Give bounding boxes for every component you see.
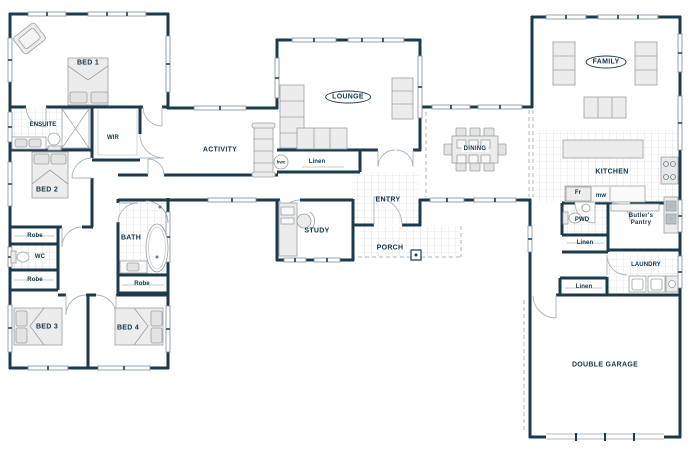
- cooktop: [661, 157, 678, 184]
- room-label-double-garage: DOUBLE GARAGE: [572, 362, 638, 369]
- pantry-counter: [611, 204, 659, 211]
- room-label-bed1: BED 1: [77, 60, 99, 67]
- room-label-butlers-pantry: Butler's Pantry: [622, 213, 660, 227]
- butler-sink: [664, 197, 678, 233]
- room-label-linen-upper: Linen: [577, 240, 594, 246]
- room-label-pwd: PWD: [575, 217, 589, 223]
- laundry-appliances: [629, 276, 678, 292]
- room-label-kitchen: KITCHEN: [595, 169, 628, 176]
- room-label-dining: DINING: [462, 146, 489, 152]
- family-sofa-bottom: [584, 97, 626, 118]
- bath-vanity: [120, 261, 147, 273]
- lounge-armchair: [392, 78, 413, 119]
- room-label-robe-bath: Robe: [134, 281, 149, 287]
- kitchen-island: [563, 140, 643, 158]
- room-label-bed4: BED 4: [117, 325, 139, 332]
- bath-tub: [146, 224, 168, 272]
- room-label-wir: WIR: [107, 135, 119, 141]
- room-label-robe-hall: Robe: [27, 277, 42, 283]
- room-label-laundry: LAUNDRY: [631, 262, 661, 268]
- family-sofa-left: [553, 42, 575, 85]
- ensuite-toilet: [48, 133, 61, 150]
- ensuite-vanity: [12, 137, 46, 149]
- fixture-label-fridge: Fr: [575, 190, 581, 196]
- wc-toilet: [11, 251, 29, 263]
- room-label-ensuite: ENSUITE: [30, 122, 57, 128]
- room-label-bed3: BED 3: [36, 324, 58, 331]
- garage-door: [546, 433, 664, 441]
- fixture-label-hwc: hwc: [277, 160, 286, 165]
- room-label-activity: ACTIVITY: [203, 147, 237, 154]
- porch-post: [411, 250, 421, 260]
- room-label-family: FAMILY: [586, 56, 627, 69]
- room-label-entry: ENTRY: [376, 197, 401, 204]
- floorplan-canvas: BED 1 ENSUITE WIR BED 2 Robe WC Robe BED…: [0, 0, 690, 458]
- family-sofa-right: [635, 42, 657, 85]
- room-label-wc: WC: [35, 254, 45, 260]
- floorplan-drawing: [0, 0, 690, 458]
- bed1-chair: [12, 22, 46, 55]
- room-label-linen-lounge: Linen: [309, 159, 326, 165]
- ensuite-shower: [62, 109, 89, 148]
- room-label-porch: PORCH: [377, 245, 404, 252]
- wir-shelves: [98, 110, 137, 155]
- room-label-study: STUDY: [304, 228, 329, 235]
- room-label-linen-lower: Linen: [576, 284, 593, 290]
- room-label-robe-bed2: Robe: [27, 233, 42, 239]
- room-label-lounge: LOUNGE: [325, 91, 371, 104]
- room-label-bath: BATH: [121, 235, 141, 242]
- room-label-bed2: BED 2: [36, 187, 58, 194]
- activity-sofa: [252, 123, 275, 177]
- dashed-lines: [358, 110, 533, 430]
- pwd-basin: [582, 204, 590, 212]
- fixture-label-microwave: mw: [596, 193, 606, 199]
